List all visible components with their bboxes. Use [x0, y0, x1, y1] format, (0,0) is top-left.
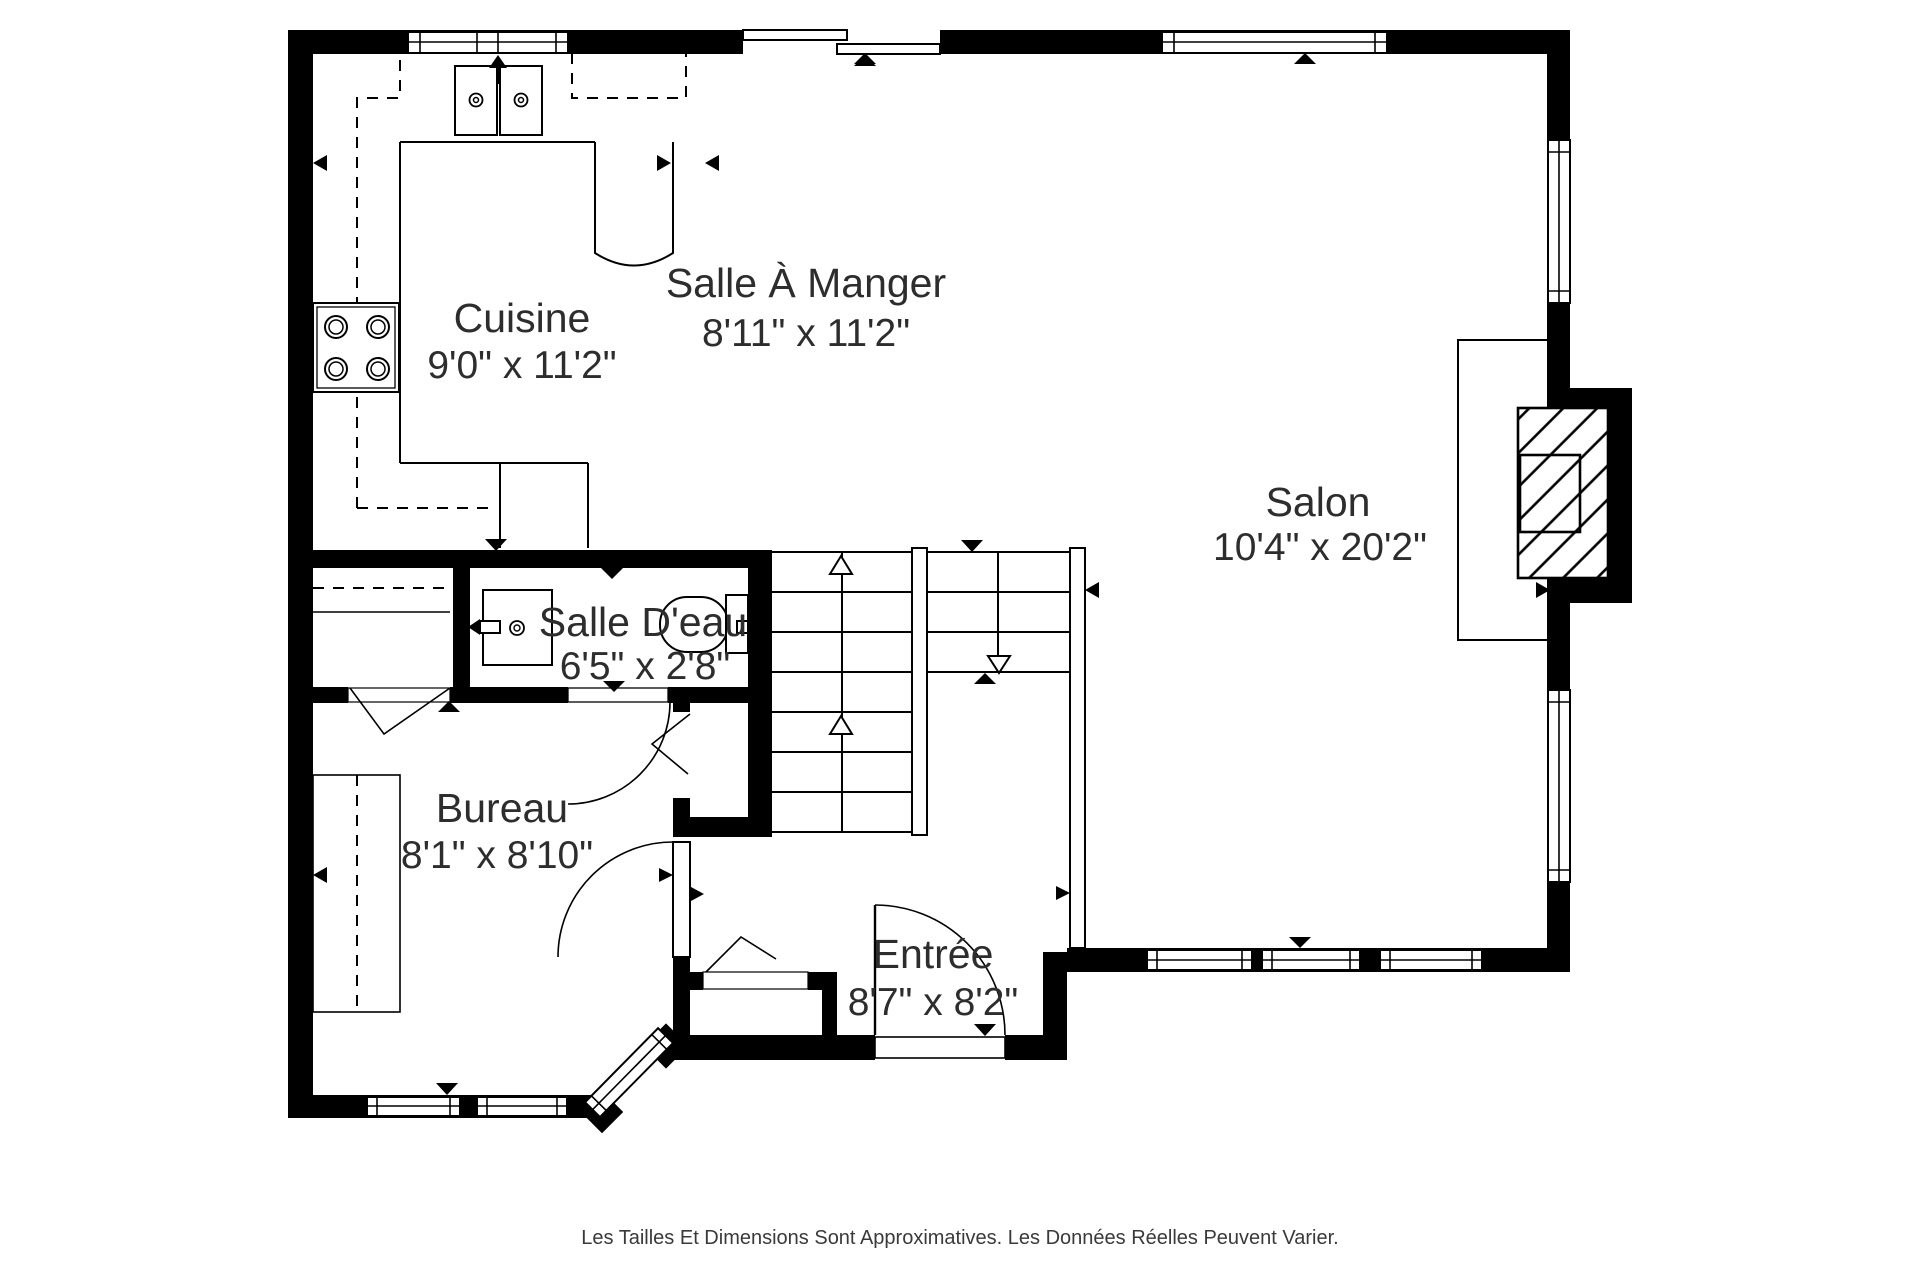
floor-plan-page: Cuisine 9'0" x 11'2" Salle À Manger 8'11… [0, 0, 1920, 1280]
stove-icon [313, 303, 399, 392]
salon-bottom-windows-icon [1147, 937, 1482, 970]
sink-icon [455, 55, 542, 135]
room-dim-salle-a-manger: 8'11" x 11'2" [702, 312, 910, 355]
room-label-salle-deau: Salle D'eau [539, 599, 747, 645]
room-dim-salon: 10'4" x 20'2" [1213, 526, 1427, 569]
dining-window-icon [1162, 32, 1387, 53]
stairs-down-arrow-icon [988, 656, 1010, 673]
stairs-up-arrow-icon [830, 716, 852, 734]
room-label-cuisine: Cuisine [454, 295, 591, 341]
room-dim-salle-deau: 6'5" x 2'8" [560, 645, 731, 688]
stair-railing-right [1070, 548, 1085, 948]
salon-window-upper-icon [1548, 140, 1570, 303]
room-label-salon: Salon [1266, 479, 1371, 525]
sliding-door-icon [743, 28, 940, 66]
room-dim-entree: 8'7" x 8'2" [848, 981, 1019, 1024]
stairs-up-arrow-icon [830, 556, 852, 574]
stair-railing-left [912, 548, 927, 835]
fireplace [1458, 340, 1632, 640]
salon-window-lower-icon [1548, 690, 1570, 882]
room-dim-bureau: 8'1" x 8'10" [401, 834, 593, 877]
room-label-bureau: Bureau [436, 785, 568, 831]
room-label-salle-a-manger: Salle À Manger [666, 260, 946, 306]
firebox-icon [1518, 408, 1608, 578]
disclaimer-text: Les Tailles Et Dimensions Sont Approxima… [581, 1227, 1338, 1249]
floor-plan: Cuisine 9'0" x 11'2" Salle À Manger 8'11… [0, 0, 1920, 1280]
staircase [772, 540, 1099, 948]
kitchen-window-icon [408, 32, 568, 53]
room-dim-cuisine: 9'0" x 11'2" [427, 344, 616, 387]
bay-window-icon [585, 1028, 673, 1117]
understair-closet-door-icon [652, 714, 690, 774]
desk-icon [313, 775, 400, 1012]
entree-closet-door-icon [703, 937, 808, 989]
room-label-entree: Entrée [873, 931, 994, 977]
